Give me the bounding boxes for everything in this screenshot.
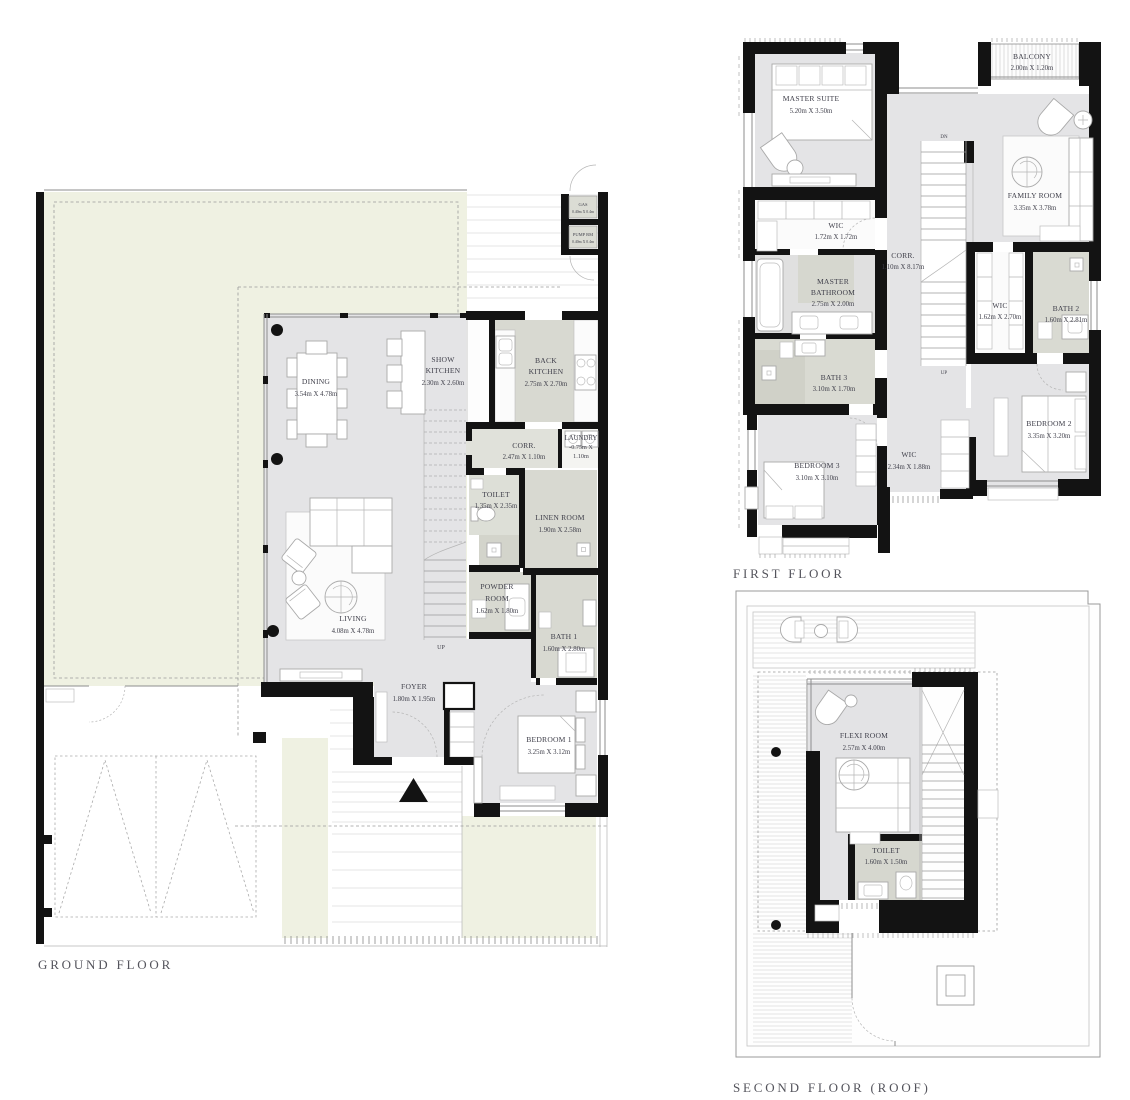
svg-text:1.62m X 1.80m: 1.62m X 1.80m (476, 608, 519, 615)
svg-text:FLEXI ROOM: FLEXI ROOM (840, 731, 888, 740)
svg-text:3.54m X 4.78m: 3.54m X 4.78m (295, 391, 338, 398)
svg-text:1.60m X 1.50m: 1.60m X 1.50m (865, 859, 908, 866)
svg-text:KITCHEN: KITCHEN (426, 366, 461, 375)
svg-text:DN: DN (940, 135, 948, 140)
svg-text:BACK: BACK (535, 356, 557, 365)
svg-text:PUMP RM: PUMP RM (573, 232, 593, 237)
svg-text:FOYER: FOYER (401, 682, 428, 691)
svg-text:1.35m X 2.35m: 1.35m X 2.35m (475, 503, 518, 510)
svg-text:5.20m X 3.50m: 5.20m X 3.50m (790, 108, 833, 115)
svg-text:1.80m X 1.95m: 1.80m X 1.95m (393, 696, 436, 703)
svg-text:1.72m X 1.72m: 1.72m X 1.72m (815, 234, 858, 241)
svg-text:ROOM: ROOM (485, 594, 509, 603)
svg-text:LAUNDRY: LAUNDRY (565, 435, 598, 442)
svg-text:BATH 2: BATH 2 (1053, 304, 1080, 313)
svg-text:SHOW: SHOW (431, 355, 455, 364)
svg-text:2.57m X 4.00m: 2.57m X 4.00m (843, 745, 886, 752)
svg-text:1.90m X 2.58m: 1.90m X 2.58m (539, 527, 582, 534)
svg-text:BEDROOM 2: BEDROOM 2 (1026, 419, 1071, 428)
svg-text:UP: UP (941, 371, 948, 376)
svg-text:POWDER: POWDER (480, 582, 514, 591)
svg-text:FIRST FLOOR: FIRST FLOOR (733, 566, 845, 581)
svg-text:BEDROOM 1: BEDROOM 1 (526, 735, 571, 744)
svg-text:1.10m: 1.10m (573, 453, 589, 460)
svg-text:WIC: WIC (901, 450, 916, 459)
svg-text:1.10m X 8.17m: 1.10m X 8.17m (882, 264, 925, 271)
svg-text:2.47m X 1.10m: 2.47m X 1.10m (503, 454, 546, 461)
svg-text:TOILET: TOILET (482, 490, 510, 499)
svg-text:TOILET: TOILET (872, 846, 900, 855)
svg-text:WIC: WIC (828, 221, 843, 230)
svg-text:1.62m X 2.70m: 1.62m X 2.70m (979, 314, 1022, 321)
svg-text:3.35m X 3.78m: 3.35m X 3.78m (1014, 205, 1057, 212)
svg-text:1.60m X 2.81m: 1.60m X 2.81m (1045, 317, 1088, 324)
svg-text:UP: UP (437, 645, 445, 651)
svg-text:-0.75m X: -0.75m X (569, 444, 593, 451)
svg-text:3.25m X 3.12m: 3.25m X 3.12m (528, 749, 571, 756)
svg-text:GAS: GAS (578, 202, 587, 207)
svg-text:0.40m X 0.4m: 0.40m X 0.4m (572, 240, 594, 244)
svg-text:MASTER SUITE: MASTER SUITE (783, 94, 840, 103)
svg-text:LINEN ROOM: LINEN ROOM (535, 513, 585, 522)
svg-text:2.30m X 2.60m: 2.30m X 2.60m (422, 380, 465, 387)
svg-text:2.00m X 1.20m: 2.00m X 1.20m (1011, 65, 1054, 72)
svg-text:3.10m X 1.70m: 3.10m X 1.70m (813, 386, 856, 393)
svg-text:SECOND FLOOR (ROOF): SECOND FLOOR (ROOF) (733, 1080, 931, 1095)
svg-text:CORR.: CORR. (891, 251, 915, 260)
svg-text:1.60m X 2.80m: 1.60m X 2.80m (543, 646, 586, 653)
svg-text:3.35m X 3.20m: 3.35m X 3.20m (1028, 433, 1071, 440)
svg-text:FAMILY ROOM: FAMILY ROOM (1008, 191, 1062, 200)
svg-text:BEDROOM 3: BEDROOM 3 (794, 461, 839, 470)
svg-text:MASTER: MASTER (817, 277, 850, 286)
svg-text:BALCONY: BALCONY (1013, 52, 1051, 61)
svg-text:BATH 3: BATH 3 (821, 373, 848, 382)
svg-text:WIC: WIC (992, 301, 1007, 310)
svg-text:BATH 1: BATH 1 (551, 632, 578, 641)
svg-text:3.10m X 3.10m: 3.10m X 3.10m (796, 475, 839, 482)
svg-text:0.40m X 0.4m: 0.40m X 0.4m (572, 210, 594, 214)
svg-text:LIVING: LIVING (339, 614, 367, 623)
svg-text:DINING: DINING (302, 377, 331, 386)
svg-text:4.08m X 4.78m: 4.08m X 4.78m (332, 628, 375, 635)
svg-text:KITCHEN: KITCHEN (529, 367, 564, 376)
svg-text:BATHROOM: BATHROOM (811, 288, 855, 297)
svg-text:2.75m X 2.00m: 2.75m X 2.00m (812, 301, 855, 308)
svg-text:2.75m X 2.70m: 2.75m X 2.70m (525, 381, 568, 388)
svg-text:GROUND FLOOR: GROUND FLOOR (38, 957, 173, 972)
svg-text:CORR.: CORR. (512, 441, 536, 450)
svg-text:2.34m X 1.88m: 2.34m X 1.88m (888, 464, 931, 471)
